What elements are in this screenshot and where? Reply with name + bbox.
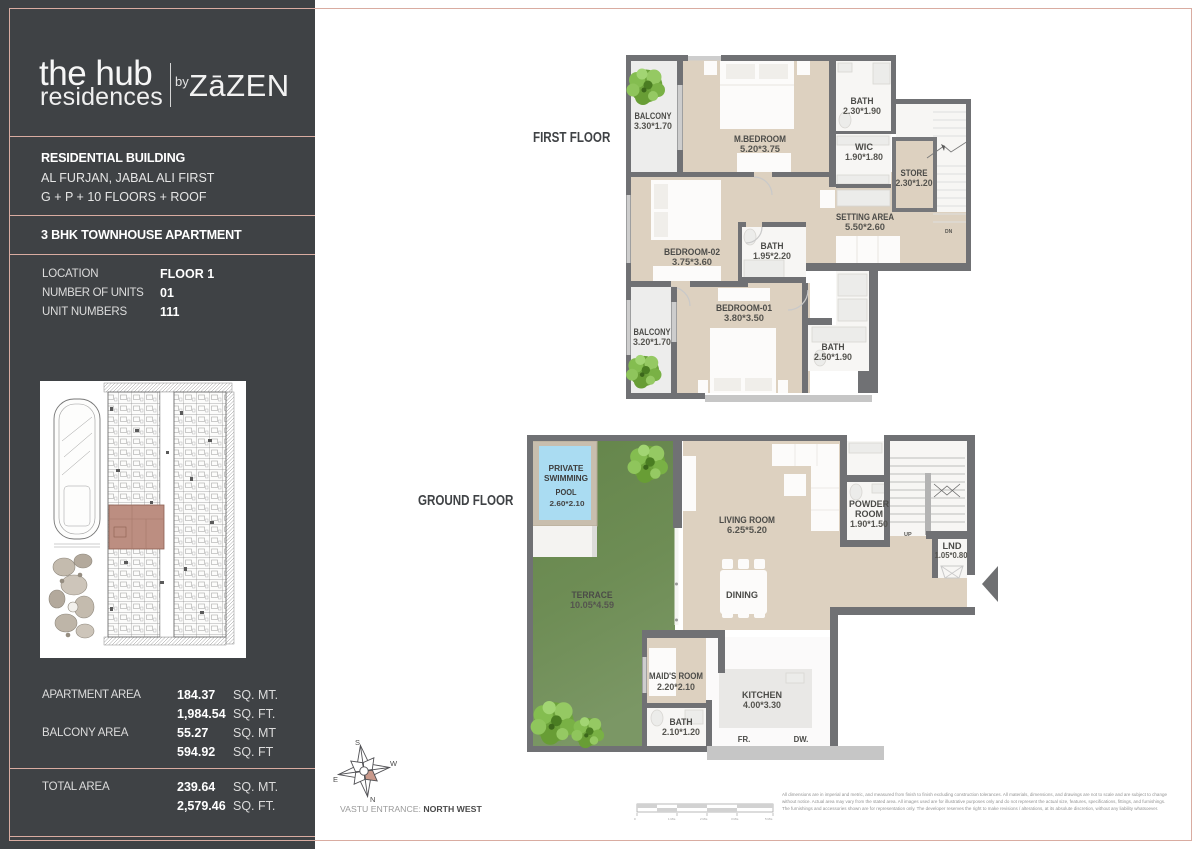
svg-text:W: W — [390, 759, 398, 768]
svg-text:DW.: DW. — [794, 735, 809, 744]
svg-text:E: E — [333, 775, 338, 784]
svg-text:SETTING AREA: SETTING AREA — [836, 212, 894, 222]
svg-text:2.30*1.20: 2.30*1.20 — [896, 178, 933, 188]
svg-text:1.90*1.80: 1.90*1.80 — [845, 152, 883, 162]
svg-text:4.00*3.30: 4.00*3.30 — [743, 700, 781, 710]
svg-text:BATH: BATH — [670, 717, 693, 727]
svg-text:5.20*3.75: 5.20*3.75 — [740, 144, 780, 154]
svg-text:DINING: DINING — [726, 590, 758, 600]
svg-text:KITCHEN: KITCHEN — [742, 690, 782, 700]
svg-text:3.75*3.60: 3.75*3.60 — [672, 257, 712, 267]
svg-text:1 Mts: 1 Mts — [668, 817, 676, 821]
svg-text:1.05*0.80: 1.05*0.80 — [935, 551, 968, 560]
svg-text:6.25*5.20: 6.25*5.20 — [727, 525, 767, 535]
svg-text:PRIVATE: PRIVATE — [549, 464, 585, 473]
svg-text:3.30*1.70: 3.30*1.70 — [634, 121, 672, 131]
svg-text:ROOM: ROOM — [855, 509, 883, 519]
svg-text:BEDROOM-01: BEDROOM-01 — [716, 303, 772, 313]
svg-text:2.30*1.90: 2.30*1.90 — [843, 106, 881, 116]
svg-text:2.10*1.20: 2.10*1.20 — [662, 727, 700, 737]
svg-text:1.90*1.50: 1.90*1.50 — [850, 519, 888, 529]
svg-text:BALCONY: BALCONY — [635, 111, 672, 121]
svg-text:5.50*2.60: 5.50*2.60 — [845, 222, 885, 232]
svg-text:POWDER: POWDER — [849, 499, 889, 509]
svg-text:DN: DN — [945, 229, 953, 235]
svg-text:BATH: BATH — [761, 241, 784, 251]
svg-text:2.20*2.10: 2.20*2.10 — [657, 682, 695, 692]
svg-text:LND: LND — [943, 541, 962, 551]
svg-text:BATH: BATH — [851, 96, 874, 106]
svg-text:FR.: FR. — [738, 735, 751, 744]
svg-text:3.80*3.50: 3.80*3.50 — [724, 313, 764, 323]
svg-text:POOL: POOL — [556, 488, 577, 497]
svg-text:WIC: WIC — [855, 142, 873, 152]
svg-text:10.05*4.59: 10.05*4.59 — [570, 600, 614, 610]
svg-text:MAID'S ROOM: MAID'S ROOM — [649, 671, 703, 681]
svg-text:S: S — [355, 738, 360, 747]
svg-text:STORE: STORE — [901, 168, 928, 178]
svg-text:2.60*2.10: 2.60*2.10 — [550, 499, 585, 508]
svg-text:2.50*1.90: 2.50*1.90 — [814, 352, 852, 362]
svg-text:UP: UP — [904, 532, 912, 538]
svg-text:BATH: BATH — [822, 342, 845, 352]
svg-text:5 Mts: 5 Mts — [765, 817, 773, 821]
svg-text:BEDROOM-02: BEDROOM-02 — [664, 247, 720, 257]
svg-text:2 Mts: 2 Mts — [700, 817, 708, 821]
svg-text:3.20*1.70: 3.20*1.70 — [633, 337, 671, 347]
svg-text:TERRACE: TERRACE — [572, 590, 613, 600]
svg-text:N: N — [370, 795, 375, 804]
svg-text:0: 0 — [634, 817, 636, 821]
svg-text:BALCONY: BALCONY — [634, 327, 671, 337]
svg-text:1.95*2.20: 1.95*2.20 — [753, 251, 791, 261]
svg-text:SWIMMING: SWIMMING — [544, 474, 588, 483]
svg-text:3 Mts: 3 Mts — [731, 817, 739, 821]
